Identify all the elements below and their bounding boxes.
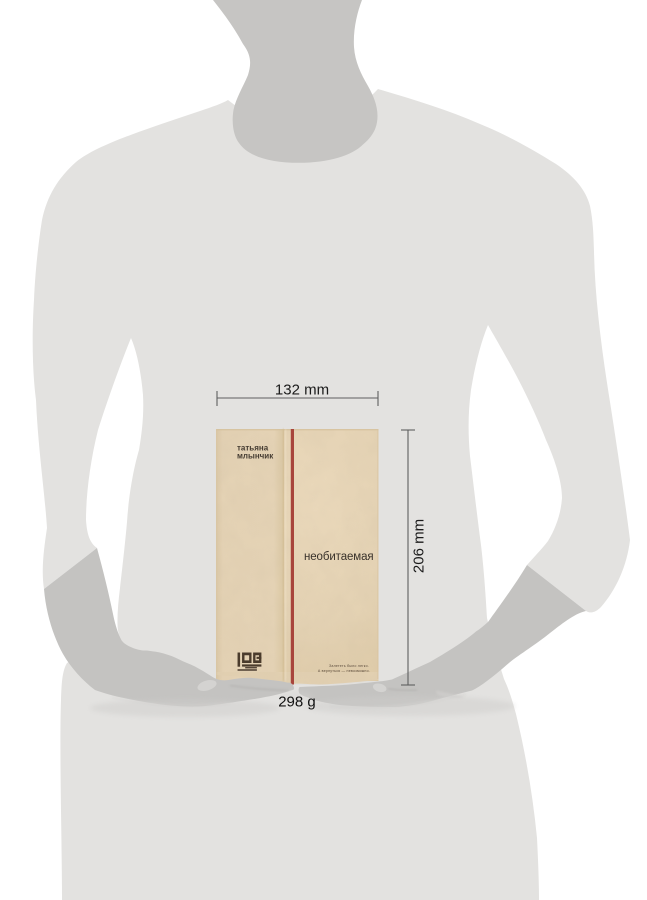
- svg-text:А вернуться — невозможно.: А вернуться — невозможно.: [318, 669, 370, 673]
- svg-text:132 mm: 132 mm: [275, 382, 329, 399]
- svg-text:необитаемая: необитаемая: [304, 551, 374, 563]
- svg-text:млынчик: млынчик: [237, 452, 274, 461]
- svg-text:206 mm: 206 mm: [411, 519, 428, 573]
- svg-text:Залететь было легко.: Залететь было легко.: [329, 664, 369, 668]
- svg-text:298 g: 298 g: [278, 694, 316, 711]
